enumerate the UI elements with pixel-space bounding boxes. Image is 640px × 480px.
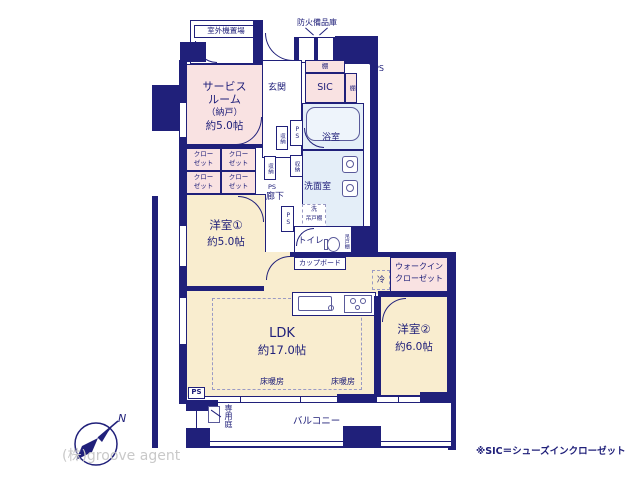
closet-2-l1: クロー [221, 150, 256, 159]
storage-washroom-side-label: 収納 [290, 155, 303, 177]
washer-label-2: 吊戸棚 [302, 215, 326, 223]
service-room-label-1: サービス [186, 81, 263, 93]
toilet-bowl-icon [327, 237, 340, 252]
company-watermark: (株)groove agent [62, 449, 180, 464]
corridor-label: 廊下 [266, 193, 284, 203]
porch-side-wall [180, 42, 206, 62]
walk-in-closet-l1: ウォークイン [390, 262, 448, 273]
sink-1-bowl [346, 160, 354, 168]
western-room-2-size: 約6.0帖 [380, 341, 448, 354]
ldk-size: 約17.0帖 [232, 343, 332, 357]
balcony-partition [343, 426, 381, 448]
washer-label-1: 洗 [302, 206, 326, 214]
washroom-label: 洗面室 [304, 183, 331, 193]
sic-footnote: ※SIC＝シューズインクローゼット [476, 447, 626, 457]
kitchen-stove [344, 295, 372, 313]
window-ldk-left [179, 298, 187, 344]
cupboard-label: カップボード [294, 257, 346, 270]
ldk-name: LDK [232, 327, 332, 342]
kitchen-faucet [328, 305, 334, 311]
walk-in-closet-l2: クローゼット [390, 274, 448, 285]
fire-equipment-label: 防火備品庫 [297, 19, 337, 28]
bathroom-label: 浴室 [322, 134, 340, 144]
western-room-2-name: 洋室② [380, 322, 448, 336]
balcony-rail [197, 441, 451, 447]
ps-shaft-upper-label: PS [290, 120, 303, 146]
closet-1-l2: ゼット [186, 159, 221, 168]
floor-plan: 室外機置場 防火備品庫 PS サービス ルーム （納戸） 約5.0帖 玄関 棚 … [0, 0, 640, 480]
ps-shaft-lower-label: PS [281, 206, 294, 232]
kitchen-sink [298, 296, 332, 311]
compass-n-label: N [118, 412, 126, 425]
storage-hall-upper-label: 収納 [276, 126, 288, 150]
closet-3-l1: クロー [186, 173, 221, 182]
stove-burner-1 [350, 298, 356, 304]
balcony-label: バルコニー [293, 417, 340, 427]
toilet-tank-icon [324, 239, 328, 250]
western-room-1-size: 約5.0帖 [186, 236, 266, 249]
shelf-right-label: 棚 [345, 73, 357, 103]
storage-corridor-label: 収納 [264, 156, 276, 180]
far-left-strip [152, 196, 158, 448]
closet-4-l1: クロー [221, 173, 256, 182]
private-garden-label: 専用庭 [221, 404, 232, 444]
closet-4-l2: ゼット [221, 182, 256, 191]
entrance-pillar [253, 20, 263, 64]
sink-2-bowl [346, 184, 354, 192]
toilet-hanging-cupboard-label: 吊戸棚 [341, 228, 351, 254]
floor-heating-label-1: 床暖房 [257, 377, 287, 387]
ps-mid-label: PS [268, 184, 276, 191]
sic-label: SIC [305, 73, 345, 103]
stove-burner-3 [355, 305, 360, 310]
closet-2-l2: ゼット [221, 159, 256, 168]
floor-heating-label-2: 床暖房 [328, 377, 358, 387]
shelf-top-label: 棚 [305, 60, 345, 73]
closet-3-l2: ゼット [186, 182, 221, 191]
outdoor-unit-label: 室外機置場 [194, 25, 258, 38]
closet-1-l1: クロー [186, 150, 221, 159]
fire-arrow-right [319, 27, 328, 35]
ps-bottom-label: PS [188, 387, 205, 399]
stove-burner-2 [360, 298, 366, 304]
fire-arrow-left [305, 27, 314, 35]
entrance-door-arc [265, 33, 293, 61]
top-left-block [152, 85, 180, 131]
bottom-left-block-2 [186, 428, 210, 448]
service-room-label-2: ルーム [186, 94, 263, 106]
right-wall-upper [370, 60, 378, 252]
entrance-label: 玄関 [268, 84, 286, 94]
fridge-label: 冷 [372, 270, 390, 290]
